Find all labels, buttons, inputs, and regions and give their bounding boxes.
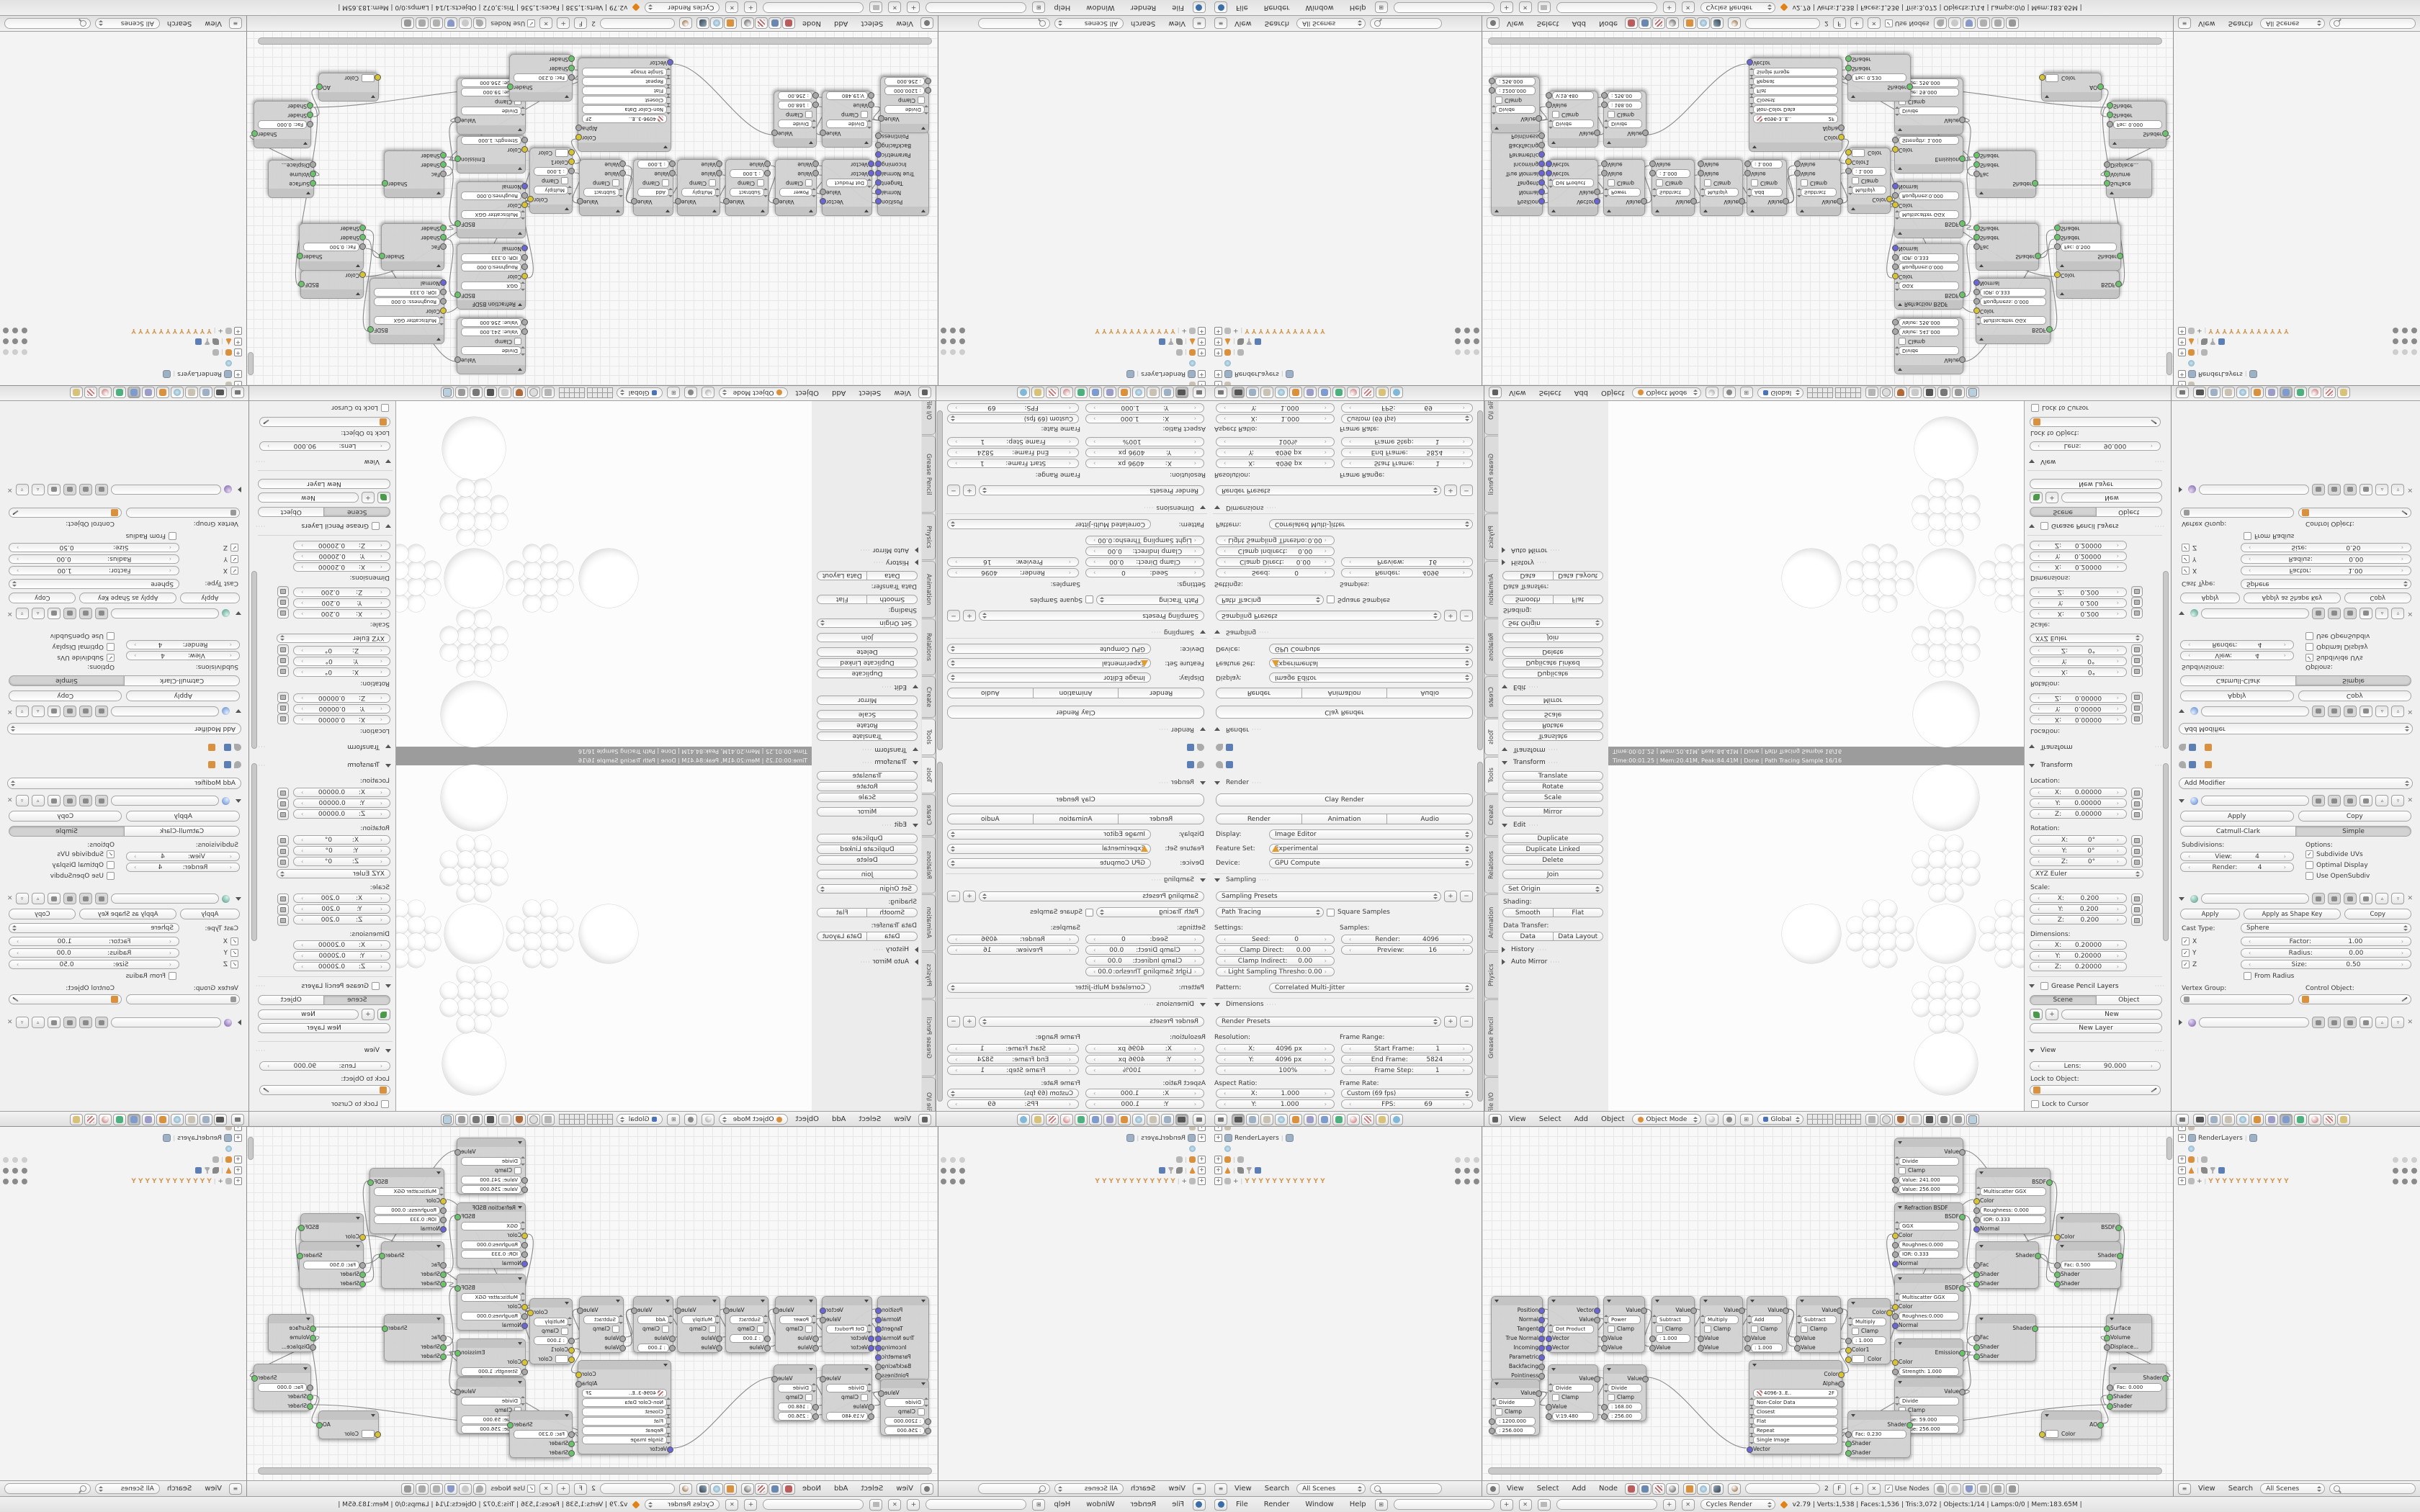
tree-row[interactable]: +RenderLayers| [3, 1133, 242, 1143]
socket-in[interactable] [1973, 171, 1980, 178]
add-scene-button[interactable]: + [744, 1499, 757, 1511]
socket-in[interactable] [667, 1446, 673, 1453]
apply-button[interactable]: Apply [2180, 593, 2240, 603]
value-slider[interactable]: X:4096 px [1085, 1044, 1204, 1053]
node-value-field[interactable]: : 1.000 [1656, 1334, 1690, 1343]
value-slider[interactable]: X:1.000 [1216, 414, 1335, 423]
shelf-toggle-smooth[interactable]: Smooth [1502, 908, 1554, 917]
node-card[interactable]: ValueDivideClamp: 168.00: 256.00 [774, 91, 817, 148]
eye-icon[interactable] [79, 484, 92, 495]
camera-icon[interactable] [95, 706, 108, 717]
tree-row[interactable]: +| [1214, 1166, 1479, 1175]
shelf-tab-tools[interactable]: Tools [1484, 757, 1498, 793]
node-value-field[interactable]: IOR: 0.333 [1980, 289, 2046, 297]
material-ball-icon[interactable] [741, 18, 754, 30]
add-datablock-button[interactable]: + [557, 1483, 570, 1495]
socket-out[interactable] [507, 1422, 514, 1428]
node-checkbox[interactable] [1704, 1326, 1711, 1333]
node-dropdown[interactable]: Dot Product [1552, 1325, 1594, 1333]
gp-new-button[interactable]: New [2061, 1009, 2162, 1020]
node-card[interactable]: ValueMultiplyClampValueValue [677, 1296, 720, 1353]
menu-view[interactable]: View [1506, 389, 1529, 397]
cage-icon[interactable] [48, 893, 60, 904]
node-card[interactable]: ValueDivideClamp: 1200.000: 256.000 [880, 1379, 929, 1436]
node-value-field[interactable]: : 256.00 [1608, 1412, 1642, 1421]
rotation-mode-dropdown[interactable]: XYZ Euler [277, 869, 390, 878]
lock-icon[interactable] [2131, 586, 2143, 597]
node-value-field[interactable]: Roughnes:0.000 [1899, 192, 1959, 201]
use-nodes-toggle[interactable]: ✓Use Nodes [1885, 19, 1930, 27]
lock-icon[interactable] [277, 597, 289, 608]
lock-icon[interactable] [2131, 915, 2143, 926]
socket-in[interactable] [568, 1431, 575, 1438]
socket-out[interactable] [1642, 1376, 1649, 1382]
node-card[interactable]: ValueDivideClamp: 1200.000: 256.000 [880, 76, 929, 133]
material-tab[interactable] [1060, 387, 1073, 399]
camera-icon[interactable] [1474, 328, 1479, 334]
node-checkbox[interactable] [514, 1167, 521, 1174]
menu-view[interactable]: View [1504, 19, 1527, 27]
socket-in[interactable] [2039, 75, 2045, 81]
socket-in[interactable] [359, 1262, 366, 1269]
tree-row[interactable]: ++|YYYYYYYYYYYY [941, 1176, 1206, 1186]
manipulator-icon[interactable]: ⊞ [667, 387, 680, 399]
socket-out[interactable] [1641, 1308, 1647, 1314]
socket-out[interactable] [297, 1253, 303, 1259]
node-value-field[interactable]: Strength: 1.000 [1899, 137, 1959, 145]
node-card[interactable]: AOColor [318, 1410, 379, 1439]
screen-icon[interactable] [441, 387, 454, 399]
axis-field[interactable]: Y:0.00000 [293, 798, 390, 808]
node-dropdown[interactable]: Divide [1608, 1384, 1642, 1392]
compositing-icon[interactable] [768, 18, 781, 30]
add-preset-button[interactable]: + [963, 891, 976, 902]
eye-icon[interactable] [2393, 1157, 2398, 1163]
socket-in[interactable] [1973, 244, 1980, 251]
eye-icon[interactable] [1455, 1179, 1461, 1184]
eye-icon[interactable] [959, 350, 965, 356]
socket-in[interactable] [440, 1226, 447, 1233]
node-value-field[interactable]: : 1.000 [534, 1336, 568, 1345]
axis-field[interactable]: Z:0.20000 [293, 541, 390, 550]
close-scene-button[interactable]: ✕ [1682, 2, 1695, 14]
shelf-tab-animation[interactable]: Animation [922, 561, 936, 618]
cursor-icon[interactable] [1464, 328, 1470, 334]
pause-icon[interactable] [455, 387, 468, 399]
move-down-button[interactable]: ▿ [2391, 706, 2404, 717]
node-card[interactable]: ValuePowerClampValueValue [775, 159, 817, 216]
expand-toggle[interactable]: + [2178, 1134, 2186, 1142]
node-value-field[interactable]: Roughnes:0.000 [461, 192, 521, 201]
cage-icon[interactable] [48, 608, 60, 619]
screen-icon[interactable] [1966, 1114, 1979, 1125]
axis-field[interactable]: Z:0.00000 [293, 693, 390, 703]
lens-field[interactable]: Lens:90.000 [2030, 1061, 2161, 1071]
compositing-icon[interactable] [1639, 1483, 1652, 1495]
add-modifier-dropdown[interactable]: Add Modifier [2179, 778, 2413, 789]
camera-icon[interactable] [2411, 1168, 2417, 1174]
menu-file[interactable]: File [1169, 1500, 1187, 1508]
action-render-button[interactable]: Render [1216, 814, 1302, 824]
socket-in[interactable] [1845, 150, 1852, 156]
world-icon[interactable] [1697, 1483, 1710, 1495]
socket-out[interactable] [820, 1308, 826, 1314]
shelf-button-delete[interactable]: Delete [1502, 855, 1603, 865]
menu-node[interactable]: Node [1596, 19, 1621, 27]
control-object-field[interactable] [9, 508, 122, 518]
tree-row[interactable]: + [2178, 1127, 2417, 1132]
modifiers-tab[interactable] [127, 387, 140, 399]
node-value-field[interactable]: : 1.000 [1656, 170, 1690, 179]
socket-in[interactable] [521, 1233, 528, 1239]
tree-row[interactable]: +| [941, 337, 1206, 346]
cast-field[interactable]: Radius:0.00 [2241, 554, 2411, 564]
texture-icon[interactable] [1652, 18, 1665, 30]
socket-in[interactable] [440, 1207, 447, 1214]
color-swatch[interactable] [362, 74, 375, 82]
texture-icon[interactable] [755, 1483, 768, 1495]
expand-toggle[interactable]: + [2178, 327, 2186, 335]
shelf-button-rotate[interactable]: Rotate [817, 721, 918, 730]
shelf-button-translate[interactable]: Translate [817, 732, 918, 741]
move-down-button[interactable]: ▿ [16, 608, 29, 619]
menu-view[interactable]: View [2195, 1485, 2218, 1493]
socket-out[interactable] [875, 152, 882, 158]
cast-type-dropdown[interactable]: Sphere [2241, 923, 2411, 933]
node-card[interactable]: ValueDivideClampValue: 241.000Value: 256… [1894, 318, 1963, 374]
node-card[interactable]: ValueDivideClampValueV:19.480 [822, 91, 872, 148]
info-editor-icon[interactable] [1193, 1499, 1206, 1511]
h-scrollbar[interactable] [258, 1467, 932, 1475]
particles-tab[interactable] [1031, 1114, 1044, 1125]
type-simple[interactable]: Simple [2296, 826, 2411, 837]
camera-icon[interactable] [941, 1179, 946, 1184]
display-filter-dropdown[interactable]: All Scenes [2260, 18, 2325, 29]
cage-icon[interactable] [2359, 484, 2372, 495]
socket-in[interactable] [1546, 93, 1552, 99]
node-card[interactable]: ValueSubtractClampValueValue [1796, 159, 1841, 216]
socket-in[interactable] [440, 1272, 447, 1278]
node-dropdown[interactable]: Subtract [583, 1315, 619, 1324]
pause-icon[interactable] [1952, 387, 1965, 399]
remove-preset-button[interactable]: − [947, 485, 960, 496]
expand-toggle[interactable]: + [234, 348, 242, 356]
socket-in[interactable] [568, 1450, 575, 1457]
socket-out[interactable] [2097, 1422, 2104, 1428]
lock-icon[interactable] [2131, 788, 2143, 798]
use-nodes-toggle[interactable]: ✓Use Nodes [490, 19, 535, 27]
menu-window[interactable]: Window [1083, 4, 1117, 12]
lock-icon[interactable] [2131, 846, 2143, 857]
type-catmull-clark[interactable]: Catmull-Clark [124, 826, 240, 837]
node-card[interactable]: ShaderFac: 0.000ShaderShader [254, 1364, 311, 1411]
eye-icon[interactable] [2393, 339, 2398, 345]
render-icon[interactable] [1923, 387, 1936, 399]
node-canvas[interactable]: PositionNormalTangentTrue NormalIncoming… [246, 1127, 938, 1496]
node-card[interactable]: SurfaceVolumeDisplace... [2106, 1314, 2152, 1352]
constraints-tab[interactable] [142, 1114, 155, 1125]
constraints-tab[interactable] [1304, 387, 1317, 399]
editor-type-icon[interactable]: ≡ [2178, 18, 2191, 30]
node-card[interactable]: ShaderFac: 0.230ShaderShader [1847, 1410, 1911, 1458]
render-presets-dropdown[interactable]: Render Presets [979, 1017, 1204, 1027]
modifier-name-field[interactable] [2201, 706, 2309, 716]
value-slider[interactable]: Y:1.000 [1085, 403, 1204, 413]
move-up-button[interactable]: ▵ [32, 706, 45, 717]
render-layers-tab[interactable] [1161, 387, 1174, 399]
node-card[interactable]: Refraction BSDFBSDFGGXColorRoughnes:0.00… [457, 243, 526, 310]
node-value-field[interactable]: : 168.00 [778, 102, 812, 110]
node-card[interactable]: BSDFMultiscatter GGXColorRoughness: 0.00… [369, 1168, 444, 1234]
expand-toggle[interactable]: + [2178, 1177, 2186, 1185]
setting-dropdown[interactable]: Image Editor [1269, 672, 1473, 683]
cage-icon[interactable] [48, 795, 60, 806]
socket-out[interactable] [1538, 1373, 1545, 1380]
socket-in[interactable] [1892, 147, 1899, 153]
socket-in[interactable] [1794, 1345, 1801, 1351]
node-card[interactable]: BSDFMultiscatter GGXColorRoughness: 0.00… [1976, 1168, 2051, 1234]
node-card[interactable]: Refraction BSDFBSDFGGXColorRoughnes:0.00… [1894, 1202, 1963, 1269]
shelf-button-duplicate[interactable]: Duplicate [1502, 834, 1603, 843]
tree-row[interactable]: ++|YYYYYYYYYYYY [1214, 326, 1479, 336]
cursor-icon[interactable] [1464, 350, 1470, 356]
socket-in[interactable] [2104, 162, 2110, 168]
node-value-field[interactable]: Fac: 0.230 [514, 1430, 568, 1439]
node-dropdown[interactable]: Dot Product [826, 179, 868, 188]
menu-select[interactable]: Select [858, 1485, 886, 1493]
socket-in[interactable] [868, 1404, 874, 1410]
sampling-presets-dropdown[interactable]: Sampling Presets [1216, 891, 1441, 901]
node-card[interactable]: ValueMultiplyClampValueValue [1700, 1296, 1743, 1353]
texture-tab[interactable] [84, 1114, 97, 1125]
camera-icon[interactable] [2411, 1157, 2417, 1163]
socket-out[interactable] [875, 1364, 882, 1370]
camera-icon[interactable] [3, 339, 9, 345]
node-value-field[interactable]: : 1.000 [730, 1334, 764, 1343]
value-slider[interactable]: Clamp Direct:0.00 [1216, 557, 1335, 567]
lock-icon[interactable] [277, 644, 289, 655]
lock-icon[interactable] [277, 904, 289, 915]
node-checkbox[interactable] [514, 338, 521, 346]
n-panel-scrollbar[interactable] [251, 763, 257, 941]
socket-out[interactable] [875, 161, 882, 168]
modifiers-tab[interactable] [1318, 1114, 1331, 1125]
node-card[interactable]: ColorMultiplyClamp: 1.000Color1Color [529, 1298, 573, 1364]
modifiers-tab[interactable] [1318, 387, 1331, 399]
expand-toggle[interactable]: + [2178, 1166, 2186, 1174]
editor-type-icon[interactable] [1487, 18, 1500, 30]
node-card[interactable]: VectorValueDot ProductVectorVector [1548, 159, 1598, 216]
setting-dropdown[interactable]: Experimental [1269, 844, 1473, 854]
menu-select[interactable]: Select [1536, 1115, 1564, 1123]
socket-out[interactable] [507, 84, 514, 91]
gp-toggle-scene[interactable]: Scene [324, 995, 391, 1005]
render-engine-dropdown[interactable]: Cycles Render [1700, 1499, 1775, 1510]
copy-button[interactable]: Copy [2344, 593, 2412, 603]
cursor-icon[interactable] [12, 1157, 18, 1163]
delete-modifier-button[interactable]: ✕ [7, 895, 13, 902]
socket-in[interactable] [1601, 1413, 1608, 1420]
gp-toggle-scene[interactable]: Scene [2030, 995, 2097, 1005]
physics-tab[interactable] [1390, 1114, 1403, 1125]
axis-field[interactable]: Y:0.00000 [293, 704, 390, 714]
editor-type-icon[interactable] [2176, 1114, 2189, 1125]
lock-icon[interactable] [277, 915, 289, 926]
socket-in[interactable] [1489, 1428, 1495, 1434]
node-value-field[interactable]: Roughnes:0.000 [461, 264, 521, 272]
node-dropdown[interactable]: Divide [884, 106, 925, 114]
move-down-button[interactable]: ▿ [2391, 893, 2404, 904]
menu-render[interactable]: Render [1261, 1500, 1293, 1508]
node-dropdown[interactable]: Divide [1899, 1157, 1959, 1166]
material-tab[interactable] [2308, 387, 2321, 399]
parent-icon[interactable] [1948, 1483, 1961, 1495]
n-panel-scrollbar[interactable] [2163, 763, 2169, 941]
socket-in[interactable] [568, 1356, 575, 1363]
remove-preset-button[interactable]: − [1460, 610, 1473, 621]
value-slider[interactable]: X:4096 px [1085, 459, 1204, 468]
expand-toggle[interactable]: + [1214, 1134, 1222, 1142]
value-slider[interactable]: Clamp Direct:0.00 [1085, 945, 1204, 955]
value-slider[interactable]: FPS:69 [947, 1099, 1079, 1109]
socket-out[interactable] [1538, 1354, 1545, 1361]
option-optimal-display[interactable]: Optimal Display [2305, 643, 2368, 651]
setting-dropdown[interactable]: GPU Compute [1269, 858, 1473, 868]
socket-in[interactable] [868, 1413, 874, 1420]
pin-icon[interactable] [473, 1483, 486, 1495]
lock-icon[interactable] [277, 846, 289, 857]
node-checkbox[interactable] [805, 1326, 812, 1333]
eye-icon[interactable] [1455, 1168, 1461, 1174]
axis-x-checkbox[interactable]: ✓X [223, 567, 238, 575]
render-layers-tab[interactable] [1161, 1114, 1174, 1125]
subdiv-field[interactable]: Render:4 [126, 863, 240, 872]
render-tab[interactable] [2193, 387, 2206, 399]
use-nodes-toggle[interactable]: ✓Use Nodes [490, 1485, 535, 1493]
gp-enable-checkbox[interactable] [372, 522, 380, 530]
socket-in[interactable] [1973, 225, 1980, 232]
axis-field[interactable]: Z:0.200 [2030, 588, 2127, 597]
socket-in[interactable] [1744, 1345, 1751, 1351]
integrator-dropdown[interactable]: Path Tracing [1216, 595, 1324, 605]
scene-icon[interactable] [869, 1499, 882, 1511]
editor-type-icon[interactable] [1487, 1483, 1500, 1495]
object-icon[interactable] [1683, 18, 1696, 30]
render-icon[interactable] [484, 387, 497, 399]
copy-icon[interactable] [416, 1483, 429, 1495]
node-dropdown[interactable]: Single Image [1753, 1436, 1838, 1444]
object-tab[interactable] [156, 1114, 169, 1125]
axis-field[interactable]: X:0° [2030, 667, 2127, 677]
socket-in[interactable] [1747, 1446, 1753, 1453]
eye-icon[interactable] [1455, 328, 1461, 334]
socket-in[interactable] [521, 1323, 528, 1329]
copy-button[interactable]: Copy [9, 909, 76, 919]
add-preset-button[interactable]: + [1444, 485, 1457, 496]
cursor-icon[interactable] [950, 328, 956, 334]
node-checkbox[interactable] [918, 97, 925, 104]
node-card[interactable]: AOColor [2041, 1410, 2102, 1439]
add-datablock-button[interactable]: + [1850, 18, 1863, 30]
gp-enable-checkbox[interactable] [372, 982, 380, 990]
display-filter-dropdown[interactable]: All Scenes [1054, 18, 1124, 29]
socket-in[interactable] [1794, 171, 1801, 177]
value-slider[interactable]: X:1.000 [1216, 1089, 1335, 1098]
node-checkbox[interactable] [757, 180, 764, 187]
orientation-dropdown[interactable]: Global [617, 1114, 663, 1125]
node-checkbox[interactable] [561, 178, 568, 185]
node-value-field[interactable]: : 168.00 [778, 1403, 812, 1411]
clay-render-button[interactable]: Clay Render [947, 793, 1204, 806]
socket-in[interactable] [1973, 1262, 1980, 1269]
node-checkbox[interactable] [1751, 180, 1758, 187]
mode-dropdown[interactable]: Object Mode [719, 1114, 788, 1125]
vertex-group-field[interactable] [2180, 994, 2294, 1004]
node-card[interactable]: ShaderFac: 0.500ShaderShader [2056, 1241, 2121, 1289]
camera-icon[interactable] [941, 328, 946, 334]
shelf-button-duplicate[interactable]: Duplicate [817, 669, 918, 678]
display-filter-dropdown[interactable]: All Scenes [1296, 1483, 1366, 1494]
node-card[interactable]: PositionNormalTangentTrue NormalIncoming… [1491, 131, 1543, 216]
viewport-canvas[interactable]: Time:00:01.25 | Mem:20.41M, Peak:84.41M … [396, 401, 812, 756]
node-checkbox[interactable] [1656, 1326, 1663, 1333]
render-tab[interactable] [214, 1114, 227, 1125]
tree-row[interactable] [941, 1144, 1206, 1153]
editor-type-icon[interactable] [231, 387, 244, 399]
value-slider[interactable]: Start Frame:1 [947, 1044, 1079, 1053]
node-value-field[interactable]: IOR: 0.333 [1899, 1250, 1959, 1259]
socket-in[interactable] [716, 1336, 722, 1342]
action-audio-button[interactable]: Audio [947, 688, 1033, 698]
node-value-field[interactable]: Value: 241.000 [1899, 328, 1959, 337]
delete-modifier-button[interactable]: ✕ [2407, 797, 2413, 804]
lens-field[interactable]: Lens:90.000 [259, 1061, 390, 1071]
node-dropdown[interactable]: GGX [1899, 1222, 1959, 1230]
shelf-tab-relations[interactable]: Relations [922, 618, 936, 675]
node-card[interactable]: VectorValueDot ProductVectorVector [1548, 1296, 1598, 1353]
shelf-toggle-flat[interactable]: Flat [817, 595, 867, 604]
socket-in[interactable] [1744, 1336, 1751, 1342]
control-object-field[interactable] [2298, 508, 2411, 518]
apply-button[interactable]: Apply [180, 593, 240, 603]
expand-toggle[interactable]: + [1214, 348, 1222, 356]
cursor-icon[interactable] [12, 1168, 18, 1174]
socket-out[interactable] [875, 143, 882, 149]
axis-field[interactable]: Z:0.20000 [2030, 541, 2127, 550]
expand-toggle[interactable]: + [1198, 1156, 1206, 1164]
socket-out[interactable] [1538, 1308, 1545, 1314]
scene-field[interactable] [763, 2, 864, 13]
tree-row[interactable] [941, 359, 1206, 368]
menu-search[interactable]: Search [2226, 1485, 2256, 1493]
node-value-field[interactable]: : 1.000 [1852, 168, 1886, 176]
material-ball-icon[interactable] [1728, 1483, 1741, 1495]
data-tab[interactable] [2294, 1114, 2307, 1125]
socket-in[interactable] [440, 1354, 447, 1360]
node-checkbox[interactable] [1608, 1326, 1615, 1333]
node-value-field[interactable]: : 1.000 [637, 161, 669, 169]
socket-in[interactable] [1892, 193, 1899, 199]
axis-z-checkbox[interactable]: ✓Z [2182, 544, 2197, 552]
color-swatch[interactable] [1852, 149, 1865, 157]
shelf-button-translate[interactable]: Translate [1502, 771, 1603, 780]
delete-modifier-button[interactable]: ✕ [7, 1019, 13, 1026]
node-dropdown[interactable]: Divide [1552, 1384, 1594, 1392]
node-dropdown[interactable]: Divide [1552, 120, 1594, 129]
expand-toggle[interactable]: + [1198, 1166, 1206, 1174]
editmode-icon[interactable] [63, 795, 76, 806]
search-input[interactable] [4, 1483, 91, 1494]
